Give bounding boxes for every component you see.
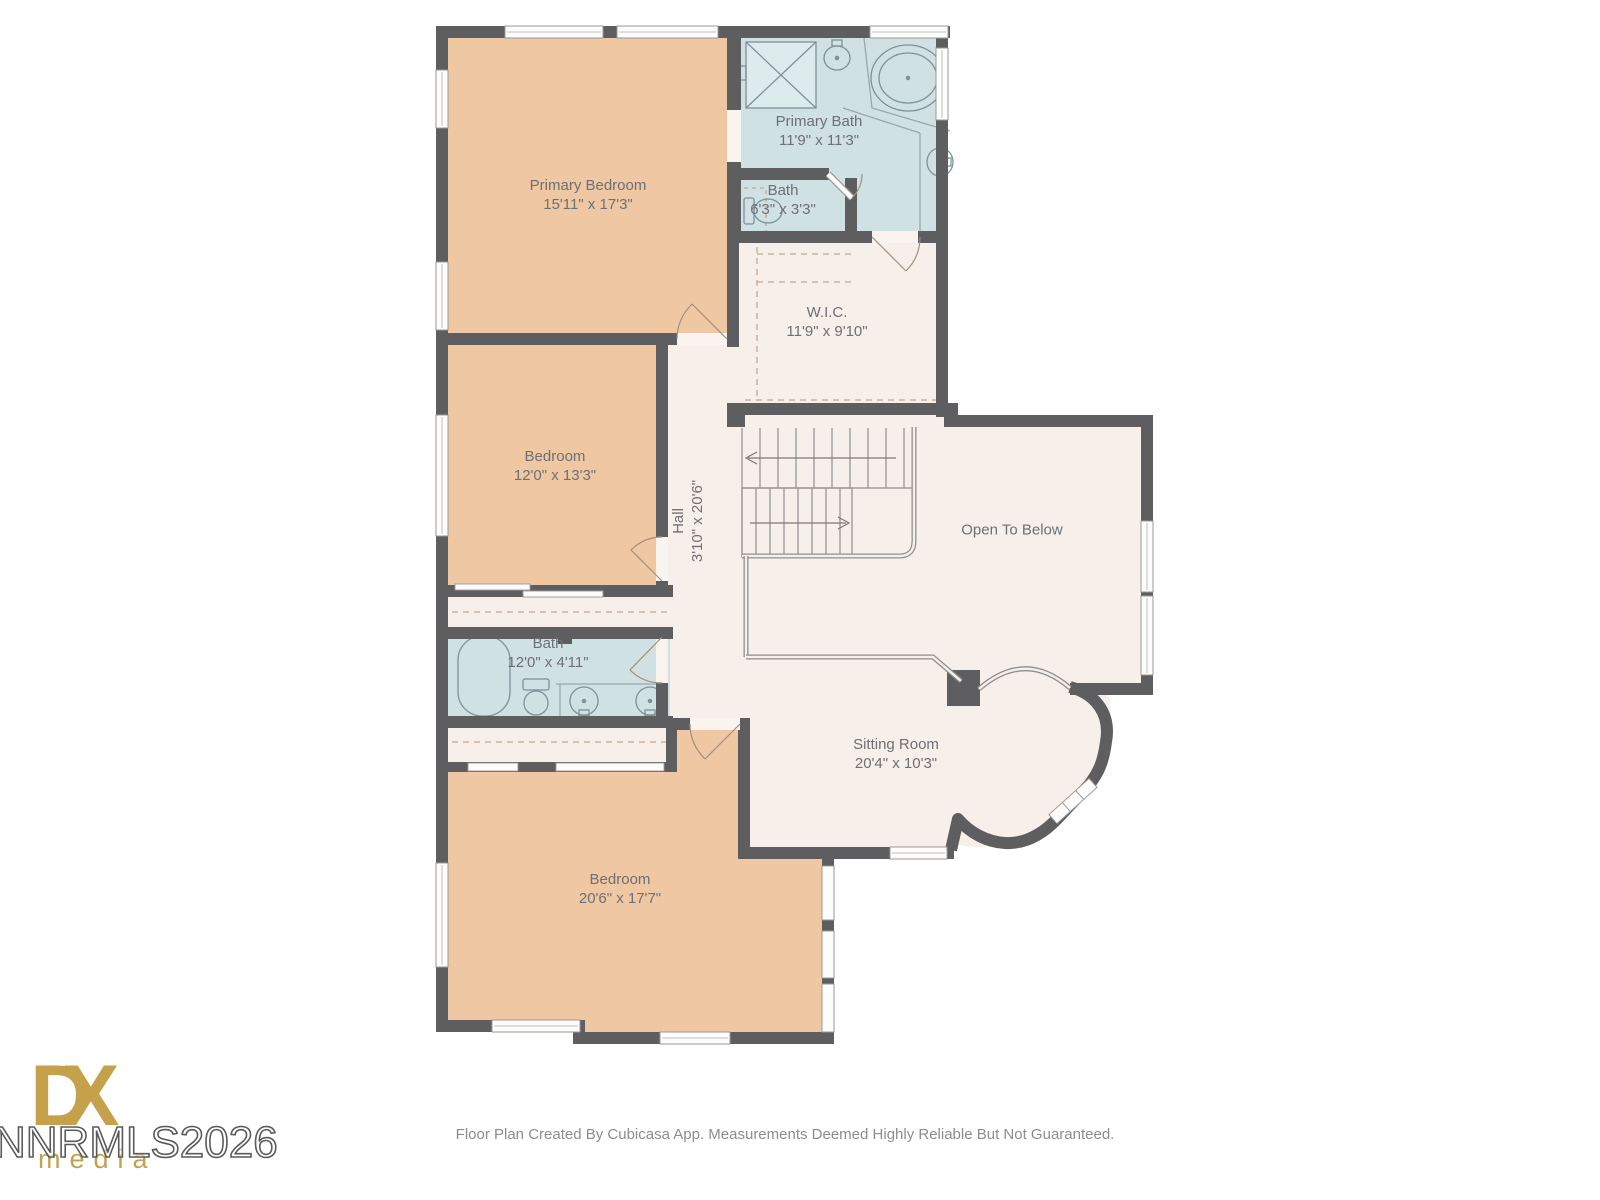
room-name: Bath bbox=[533, 635, 564, 652]
room-label-primary-bath: Primary Bath 11'9" x 11'3" bbox=[776, 112, 863, 150]
room-dims: 12'0" x 13'3" bbox=[514, 466, 596, 485]
room-dims: 15'11" x 17'3" bbox=[530, 195, 647, 214]
room-label-primary-bedroom: Primary Bedroom 15'11" x 17'3" bbox=[530, 176, 647, 214]
room-name: Bedroom bbox=[590, 871, 651, 888]
room-label-bedroom-bottom: Bedroom 20'6" x 17'7" bbox=[579, 870, 661, 908]
shower bbox=[739, 42, 816, 108]
room-dims: 3'10" x 20'6" bbox=[688, 480, 707, 562]
room-label-bath-upper: Bath 6'3" x 3'3" bbox=[750, 181, 816, 219]
room-dims: 20'6" x 17'7" bbox=[579, 889, 661, 908]
room-label-wic: W.I.C. 11'9" x 9'10" bbox=[786, 303, 867, 341]
room-dims: 11'9" x 11'3" bbox=[776, 131, 863, 150]
room-label-hall: Hall 3'10" x 20'6" bbox=[669, 480, 707, 562]
floorplan-svg bbox=[0, 0, 1600, 1200]
room-name: Primary Bath bbox=[776, 113, 863, 130]
room-dims: 12'0" x 4'11" bbox=[507, 653, 588, 672]
room-dims: 20'4" x 10'3" bbox=[853, 754, 939, 773]
room-label-bedroom-middle: Bedroom 12'0" x 13'3" bbox=[514, 447, 596, 485]
room-name: Open To Below bbox=[961, 522, 1062, 539]
room-name: Bedroom bbox=[525, 448, 586, 465]
room-name: Hall bbox=[670, 508, 687, 534]
room-label-bath-middle: Bath 12'0" x 4'11" bbox=[507, 634, 588, 672]
disclaimer-text: Floor Plan Created By Cubicasa App. Meas… bbox=[0, 1126, 1570, 1143]
room-name: Bath bbox=[768, 182, 799, 199]
room-label-sitting-room: Sitting Room 20'4" x 10'3" bbox=[853, 735, 939, 773]
room-label-open-to-below: Open To Below bbox=[961, 521, 1062, 540]
room-name: Primary Bedroom bbox=[530, 177, 647, 194]
floorplan-page: Primary Bedroom 15'11" x 17'3" Primary B… bbox=[0, 0, 1600, 1200]
room-name: Sitting Room bbox=[853, 736, 939, 753]
room-name: W.I.C. bbox=[807, 304, 848, 321]
room-dims: 11'9" x 9'10" bbox=[786, 322, 867, 341]
room-dims: 6'3" x 3'3" bbox=[750, 200, 816, 219]
